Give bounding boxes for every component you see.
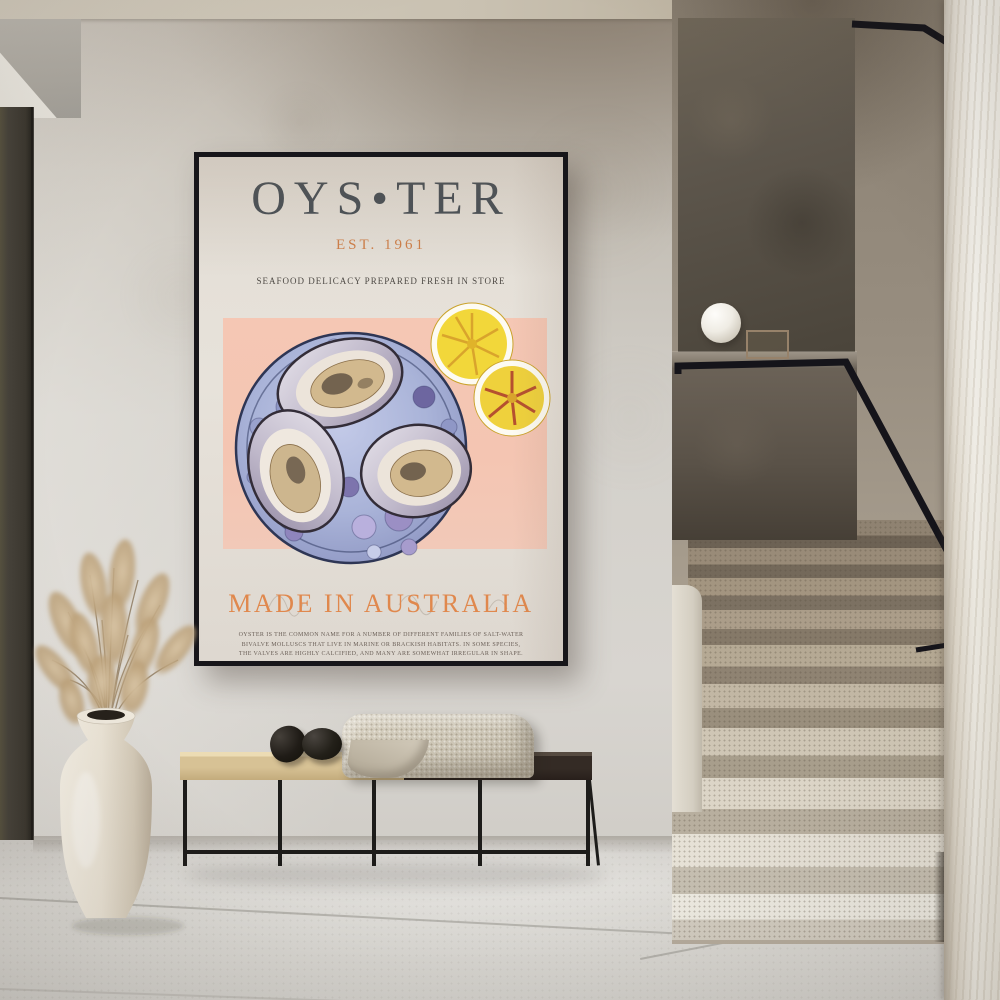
poster-lighting-overlay (199, 157, 563, 661)
right-wall-column (944, 0, 1000, 1000)
bench-floor-shadow (185, 862, 605, 888)
staircase-zone (672, 0, 952, 944)
poster-frame: OYS•TER EST. 1961 SEAFOOD DELICACY PREPA… (194, 152, 568, 666)
pampas-plumes (28, 538, 203, 728)
vase-highlight (72, 772, 100, 868)
vase-opening (87, 710, 125, 720)
hallway-scene: OYS•TER EST. 1961 SEAFOOD DELICACY PREPA… (0, 0, 1000, 1000)
stone-decor-round (302, 728, 342, 760)
bench-bottom-rail (183, 850, 590, 854)
poster-paper: OYS•TER EST. 1961 SEAFOOD DELICACY PREPA… (199, 157, 563, 661)
vase-and-pampas (10, 520, 230, 940)
vase-floor-shadow (72, 917, 184, 935)
handrail-upper (852, 24, 950, 44)
handrail-main (678, 362, 950, 556)
handrail-svg (672, 0, 952, 944)
